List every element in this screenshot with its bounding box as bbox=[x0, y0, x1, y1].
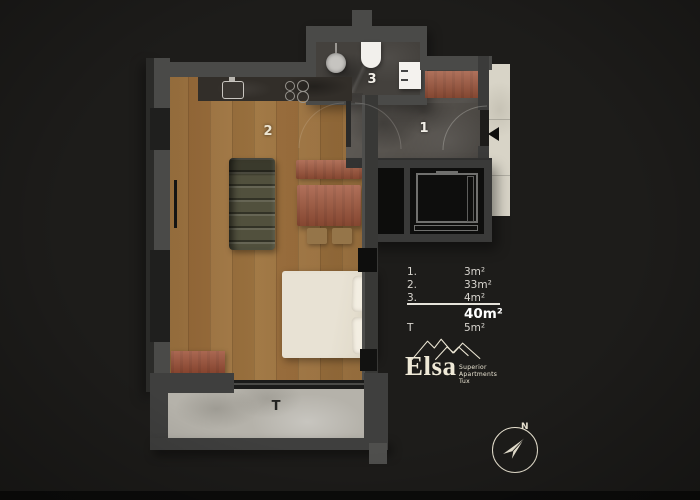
elevator-side-rail bbox=[467, 176, 474, 222]
kitchen-faucet bbox=[229, 77, 235, 81]
right-window-niche bbox=[358, 248, 377, 272]
compass-needle-icon bbox=[492, 427, 538, 473]
elevator-rail bbox=[414, 225, 478, 231]
wall-stub bbox=[369, 443, 387, 464]
legend-total: 40m² bbox=[464, 306, 503, 322]
elevator-door-line bbox=[436, 171, 458, 174]
legend-key: T bbox=[407, 322, 413, 334]
bathroom-sink bbox=[326, 53, 346, 73]
legend-value: 33m² bbox=[464, 279, 492, 291]
room-label-hallway: 1 bbox=[414, 121, 434, 136]
shaft-void bbox=[374, 168, 404, 234]
hall-wardrobe bbox=[425, 71, 478, 98]
legend-value: 3m² bbox=[464, 266, 485, 278]
door-partition-stub bbox=[346, 101, 351, 147]
stool bbox=[332, 228, 352, 244]
window-mullion bbox=[174, 180, 177, 228]
legend-row: 1. 3m² bbox=[407, 266, 503, 279]
image-bottom-edge bbox=[0, 491, 700, 500]
left-window-recess bbox=[150, 250, 170, 342]
room-label-living: 2 bbox=[258, 124, 278, 139]
legend-value: 5m² bbox=[464, 322, 485, 334]
shower-valve bbox=[401, 79, 408, 81]
toilet bbox=[361, 42, 381, 68]
right-entry-wall-upper bbox=[478, 56, 489, 110]
logo-wordmark: Elsa bbox=[405, 351, 457, 382]
compass-north-label: N bbox=[521, 422, 529, 432]
shower-unit bbox=[399, 62, 421, 89]
entrance-arrow-icon bbox=[488, 127, 499, 141]
room-label-terrace: T bbox=[266, 399, 286, 414]
hob-burner bbox=[285, 81, 295, 91]
terrace-window-glass-line bbox=[234, 383, 366, 385]
hob-burner bbox=[285, 91, 295, 101]
chimney-stub bbox=[352, 10, 372, 28]
left-window-recess bbox=[150, 108, 170, 150]
legend-key: 1. bbox=[407, 266, 417, 278]
stool bbox=[307, 228, 327, 244]
room-label-bathroom: 3 bbox=[362, 72, 382, 87]
terrace-floor bbox=[166, 388, 368, 440]
hob-burner bbox=[297, 91, 309, 103]
logo-tagline-line: Apartments bbox=[459, 371, 497, 378]
shower-valve bbox=[401, 70, 408, 72]
nightstand bbox=[360, 349, 377, 371]
dining-table bbox=[297, 185, 361, 226]
logo-tagline: Superior Apartments Tux bbox=[459, 364, 497, 385]
kitchen-sink bbox=[222, 81, 244, 99]
logo-tagline-line: Tux bbox=[459, 378, 497, 385]
logo-tagline-line: Superior bbox=[459, 364, 497, 371]
terrace-right-wall bbox=[364, 373, 388, 450]
top-wall bbox=[160, 62, 312, 77]
legend-divider bbox=[407, 303, 500, 305]
terrace-bottom-wall bbox=[150, 438, 388, 450]
living-right-wall bbox=[362, 95, 378, 385]
legend-row: 2. 33m² bbox=[407, 279, 503, 292]
sofa bbox=[229, 158, 275, 250]
legend-key: 2. bbox=[407, 279, 417, 291]
floor-plan-canvas: 1 2 3 T 1. 3m² 2. 33m² 3. 4m² 40m² T 5m²… bbox=[0, 0, 700, 500]
